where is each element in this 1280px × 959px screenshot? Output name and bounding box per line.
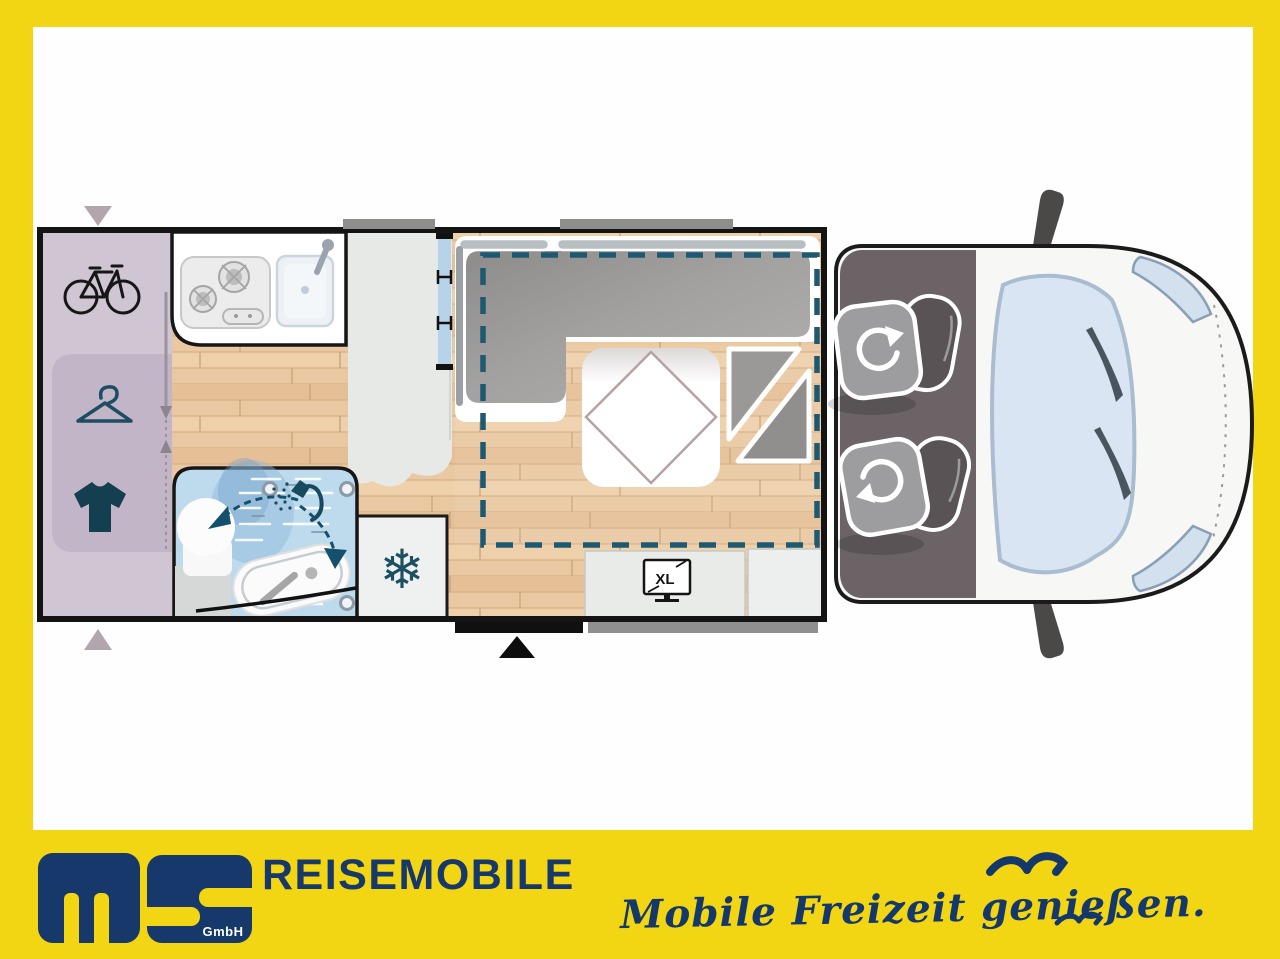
seagull-icon: [1057, 914, 1100, 923]
kitchen-counter-column: [348, 232, 453, 486]
swivel-seat-icon: [837, 433, 975, 539]
kitchen-area: [172, 232, 346, 345]
company-name: REISEMOBILE: [262, 851, 575, 900]
garage-door-arrow-top: [84, 206, 112, 226]
logo-m-slot: [94, 893, 109, 943]
sofa-backrest-cushion: [557, 239, 807, 250]
seagull-icon: [990, 856, 1063, 872]
seagull-icons: [960, 840, 1110, 950]
entry-arrow-icon: [499, 636, 535, 658]
wardrobe-area: [52, 354, 172, 552]
logo-m-shape: [38, 853, 140, 943]
sofa-backrest-cushion: [459, 239, 549, 250]
logo-s-notch: [199, 888, 252, 907]
windshield: [992, 276, 1134, 573]
fridge-cabinet: ❄: [357, 516, 447, 618]
floorplan-drawing: XL ❄: [0, 0, 1280, 959]
swivel-seat-icon: [833, 292, 964, 401]
dinette-table: [582, 348, 720, 487]
washbasin: [177, 498, 235, 556]
rear-garage-area: [41, 232, 172, 618]
garage-door-arrow-bottom: [84, 629, 112, 650]
entry-step: [455, 622, 583, 633]
logo-gmbh-label: GmbH: [196, 924, 250, 940]
side-window-strip: [438, 236, 451, 366]
logo-m-slot: [64, 893, 79, 943]
sofa-armrest: [456, 246, 463, 406]
stove-icon: [181, 257, 270, 328]
snowflake-icon: ❄: [379, 538, 424, 601]
bathroom-area: [174, 458, 357, 622]
tv-sideboard: XL: [585, 549, 822, 617]
vehicle-cab: [828, 190, 1252, 659]
logo-s-notch: [147, 907, 200, 926]
rear-bumper-strip: [588, 622, 818, 633]
